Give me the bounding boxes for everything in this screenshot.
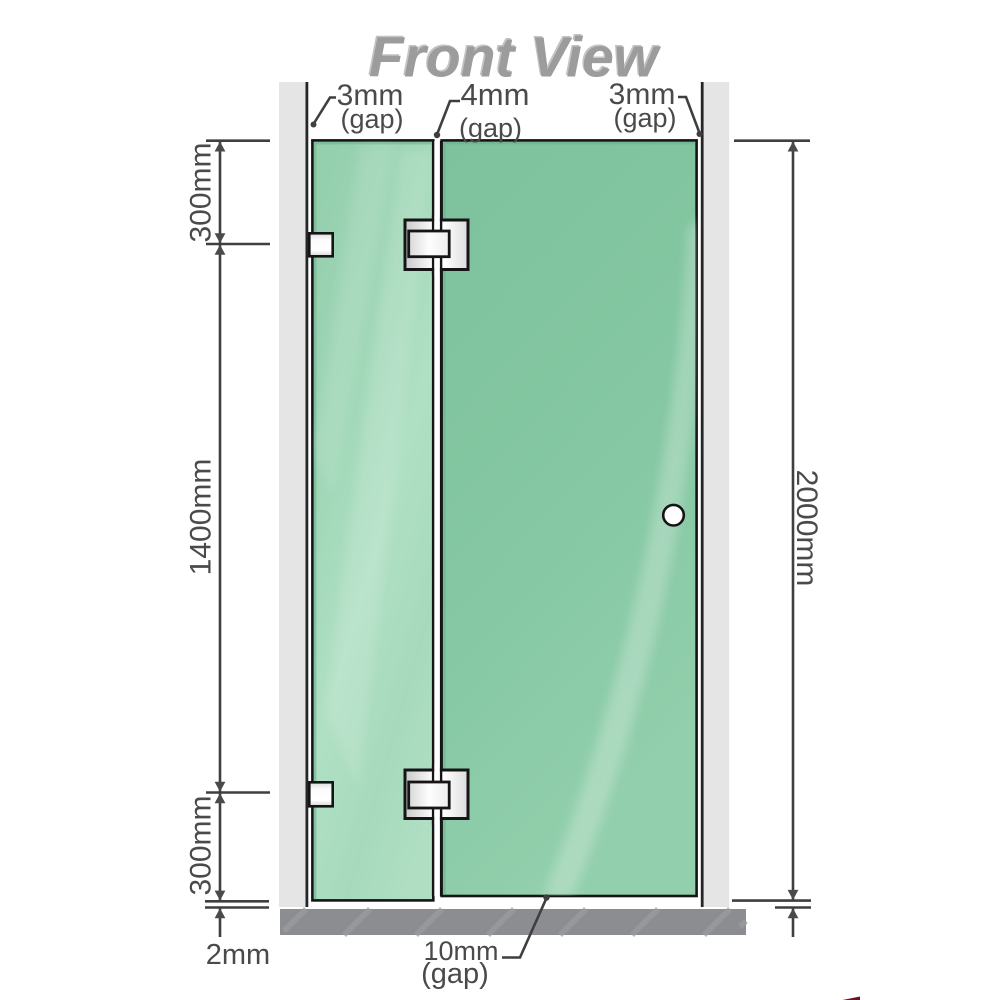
svg-text:(gap): (gap) [340,104,403,134]
svg-text:(gap): (gap) [613,103,676,133]
svg-text:300mm: 300mm [185,142,218,242]
svg-text:2mm: 2mm [206,939,270,971]
svg-text:1400mm: 1400mm [185,459,218,576]
svg-text:(gap): (gap) [421,958,489,990]
svg-text:4mm: 4mm [461,77,530,112]
svg-text:(gap): (gap) [459,113,522,143]
svg-text:2000mm: 2000mm [790,470,823,587]
svg-text:300mm: 300mm [185,795,218,895]
